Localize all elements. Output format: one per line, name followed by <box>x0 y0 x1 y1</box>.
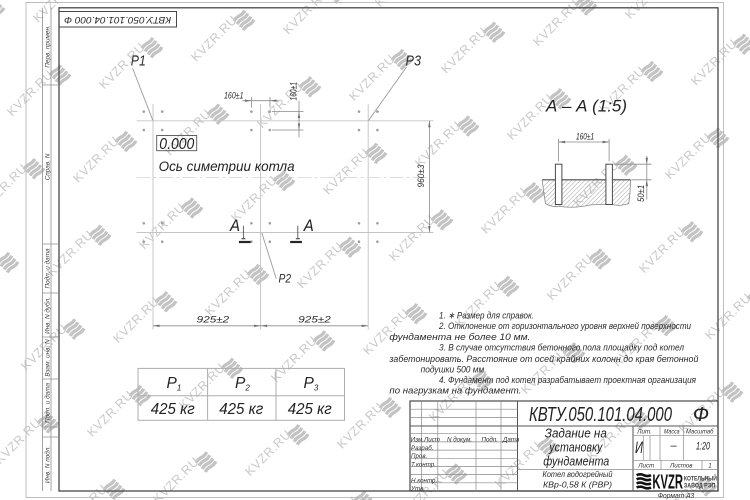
svg-text:Листов: Листов <box>669 462 693 469</box>
svg-text:Р3: Р3 <box>304 375 319 393</box>
svg-text:–: – <box>670 440 678 452</box>
svg-text:КВр-0,58 К (РВР): КВр-0,58 К (РВР) <box>543 481 612 490</box>
svg-text:Подп.: Подп. <box>482 436 498 443</box>
svg-text:925±2: 925±2 <box>298 314 331 324</box>
svg-text:KVZR.RU: KVZR.RU <box>0 161 30 213</box>
svg-text:2. Отклонение от горизонтально: 2. Отклонение от горизонтального уровня … <box>438 321 691 331</box>
svg-text:KVZR.RU: KVZR.RU <box>280 0 332 37</box>
svg-text:А – А (1:5): А – А (1:5) <box>545 97 627 116</box>
svg-text:Инв. N дубл.: Инв. N дубл. <box>44 297 52 334</box>
svg-text:KVZR.RU: KVZR.RU <box>242 427 294 479</box>
svg-text:Подп. и дата: Подп. и дата <box>44 383 52 423</box>
svg-text:подушки 500 мм.: подушки 500 мм. <box>421 364 487 374</box>
svg-text:KVZR.RU: KVZR.RU <box>688 37 740 89</box>
svg-text:Р1: Р1 <box>167 375 182 393</box>
svg-text:1. ∗ Размер для справок.: 1. ∗ Размер для справок. <box>439 311 534 321</box>
svg-text:Справ. N: Справ. N <box>45 153 52 180</box>
svg-text:Р3: Р3 <box>406 54 422 70</box>
svg-text:по нагрузкам на фундамент.: по нагрузкам на фундамент. <box>389 385 521 395</box>
svg-text:3. В случае отсутствия бетонно: 3. В случае отсутствия бетонного пола пл… <box>439 343 685 353</box>
svg-text:KVZR.RU: KVZR.RU <box>136 200 188 252</box>
svg-text:Р2: Р2 <box>279 273 292 285</box>
svg-text:KVZR.RU: KVZR.RU <box>636 224 688 276</box>
svg-text:Ось симетрии котла: Ось симетрии котла <box>159 158 295 174</box>
svg-text:KVZR.RU: KVZR.RU <box>320 146 372 198</box>
svg-text:0.000: 0.000 <box>159 136 194 153</box>
svg-text:КВТУ.050.101.04.000 Ф: КВТУ.050.101.04.000 Ф <box>64 15 171 25</box>
svg-text:KVZR.RU: KVZR.RU <box>44 228 96 280</box>
svg-text:Утв.: Утв. <box>410 485 425 492</box>
svg-text:KVZR.RU: KVZR.RU <box>438 25 490 77</box>
svg-text:КОТЕЛЬНЫЙ: КОТЕЛЬНЫЙ <box>684 473 717 482</box>
svg-text:КВТУ.050.101.04.000: КВТУ.050.101.04.000 <box>529 403 672 426</box>
svg-text:ЗАВОД РЭП: ЗАВОД РЭП <box>684 483 716 490</box>
svg-text:фундамента: фундамента <box>543 455 609 469</box>
svg-text:установку: установку <box>548 441 602 455</box>
svg-text:KVZR.RU: KVZR.RU <box>4 67 56 119</box>
svg-text:1: 1 <box>708 462 711 469</box>
svg-text:Изм.Лист: Изм.Лист <box>411 436 440 443</box>
svg-text:KVZR.RU: KVZR.RU <box>570 158 622 210</box>
svg-text:Лист: Лист <box>637 462 654 469</box>
svg-text:4. Фундамент под котел разраба: 4. Фундамент под котел разрабатывает про… <box>439 375 696 385</box>
svg-text:Подп. и дата: Подп. и дата <box>44 248 52 288</box>
svg-text:забетонировать. Расстояние от: забетонировать. Расстояние от осей крайн… <box>388 354 698 364</box>
svg-text:KVZR.RU: KVZR.RU <box>544 251 596 303</box>
svg-text:KVZR.RU: KVZR.RU <box>202 267 254 319</box>
svg-text:И: И <box>635 439 643 457</box>
svg-text:Лит.: Лит. <box>636 428 652 435</box>
svg-text:Р1: Р1 <box>131 53 146 69</box>
svg-text:KVZR.RU: KVZR.RU <box>150 454 202 500</box>
svg-text:Пров.: Пров. <box>411 453 427 460</box>
svg-text:425 кг: 425 кг <box>219 401 263 418</box>
svg-text:Р2: Р2 <box>235 375 250 393</box>
svg-text:Взам. инв. N: Взам. инв. N <box>45 339 52 377</box>
svg-text:N докум.: N докум. <box>447 436 472 443</box>
svg-text:Разраб.: Разраб. <box>411 445 433 452</box>
svg-text:KVZR.RU: KVZR.RU <box>346 52 398 104</box>
svg-text:KVZR.RU: KVZR.RU <box>334 400 386 452</box>
svg-text:KVZR.RU: KVZR.RU <box>662 130 714 182</box>
svg-text:960±3: 960±3 <box>416 164 426 187</box>
svg-text:Масса: Масса <box>664 428 680 435</box>
svg-text:KVZR.RU: KVZR.RU <box>702 291 750 343</box>
svg-text:Н.контр.: Н.контр. <box>411 478 437 485</box>
svg-text:KVZR.RU: KVZR.RU <box>622 0 674 22</box>
svg-text:425 кг: 425 кг <box>288 401 332 418</box>
svg-text:1:20: 1:20 <box>696 441 711 453</box>
svg-text:Инв. N подл.: Инв. N подл. <box>44 446 52 483</box>
svg-text:Задание на: Задание на <box>545 427 607 441</box>
svg-text:Формат А3: Формат А3 <box>658 491 695 500</box>
svg-text:Котел водогрейный: Котел водогрейный <box>543 470 613 479</box>
svg-text:50±1: 50±1 <box>636 185 646 202</box>
svg-text:KVZR.RU: KVZR.RU <box>412 118 464 170</box>
svg-text:KVZR.RU: KVZR.RU <box>478 185 530 237</box>
svg-text:фундамента не более 10 мм.: фундамента не более 10 мм. <box>389 332 530 342</box>
svg-text:160±1: 160±1 <box>224 90 244 100</box>
svg-text:160±1: 160±1 <box>576 131 594 141</box>
svg-text:Ф: Ф <box>693 403 709 426</box>
svg-text:Дата: Дата <box>502 436 520 443</box>
svg-text:Т.контр.: Т.контр. <box>411 461 436 468</box>
svg-text:KVZR.RU: KVZR.RU <box>0 415 44 467</box>
svg-text:160±1: 160±1 <box>289 82 299 101</box>
svg-text:KVZR.RU: KVZR.RU <box>386 212 438 264</box>
svg-text:KVZR.RU: KVZR.RU <box>308 494 360 500</box>
svg-text:Масштаб: Масштаб <box>686 428 714 435</box>
svg-text:А: А <box>303 217 314 235</box>
svg-text:KVZR.RU: KVZR.RU <box>294 240 346 292</box>
svg-text:925±2: 925±2 <box>197 314 230 324</box>
svg-text:425 кг: 425 кг <box>151 401 195 418</box>
svg-text:KVZR.RU: KVZR.RU <box>84 388 136 440</box>
svg-text:А: А <box>229 217 240 235</box>
svg-text:KVZR.RU: KVZR.RU <box>70 134 122 186</box>
svg-text:KVZR.RU: KVZR.RU <box>110 294 162 346</box>
svg-text:Перв. примен.: Перв. примен. <box>45 25 52 67</box>
svg-text:KVZR.RU: KVZR.RU <box>188 13 240 65</box>
